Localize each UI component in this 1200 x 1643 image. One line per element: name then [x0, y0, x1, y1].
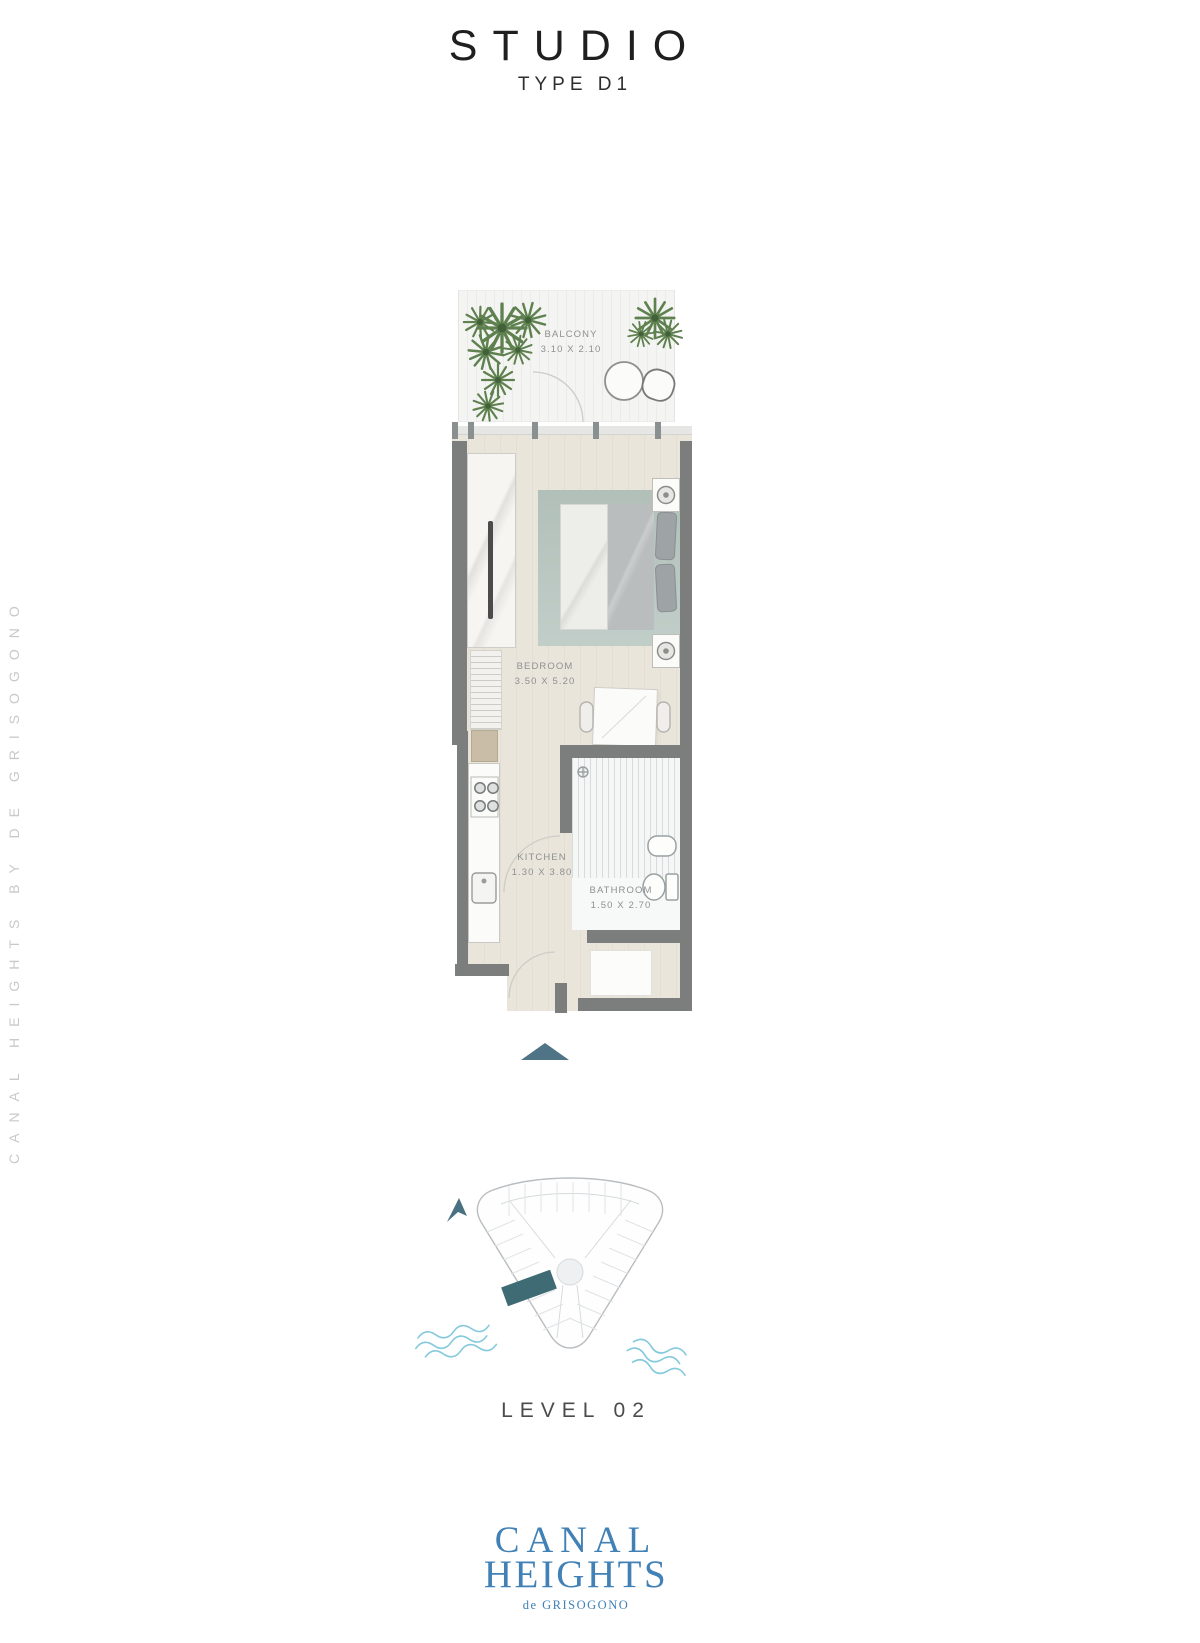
- north-arrow-icon: [447, 1198, 467, 1222]
- room-label-bedroom: BEDROOM 3.50 X 5.20: [515, 660, 576, 689]
- window-mullion: [452, 422, 458, 439]
- page-subtitle: TYPE D1: [0, 74, 1150, 96]
- entrance-arrow-icon: [521, 1043, 569, 1060]
- wall: [560, 745, 680, 758]
- page-title: STUDIO: [0, 22, 1150, 71]
- room-label-bathroom: BATHROOM 1.50 X 2.70: [590, 884, 653, 913]
- wall: [680, 441, 692, 1011]
- room-label-kitchen: KITCHEN 1.30 X 3.80: [512, 851, 573, 880]
- room-dimensions: 1.30 X 3.80: [512, 866, 573, 881]
- nightstand: [652, 634, 680, 668]
- window-mullion: [532, 422, 538, 439]
- wall: [560, 745, 572, 833]
- room-name: KITCHEN: [512, 851, 573, 866]
- level-label: LEVEL 02: [0, 1399, 1152, 1423]
- room-name: BATHROOM: [590, 884, 653, 899]
- bathroom-shower-tiles: [572, 758, 680, 878]
- floor-plan: BALCONY 3.10 X 2.10: [440, 288, 700, 1068]
- room-name: BALCONY: [541, 328, 602, 343]
- brand-name-line2: HEIGHTS: [0, 1557, 1152, 1593]
- console-cabinet: [471, 730, 498, 762]
- wardrobe-handle: [488, 521, 493, 619]
- window-mullion: [468, 422, 474, 439]
- room-dimensions: 1.50 X 2.70: [590, 899, 653, 914]
- room-dimensions: 3.50 X 5.20: [515, 675, 576, 690]
- dining-table: [592, 687, 658, 747]
- wall: [578, 998, 680, 1011]
- room-name: BEDROOM: [515, 660, 576, 675]
- kitchen-counter: [468, 763, 500, 943]
- bed-pillow: [655, 564, 677, 613]
- nightstand: [652, 478, 680, 512]
- entry-closet-mat: [590, 950, 652, 996]
- wall: [587, 930, 680, 943]
- window-mullion: [655, 422, 661, 439]
- shelf-unit: [470, 650, 502, 730]
- room-label-balcony: BALCONY 3.10 X 2.10: [541, 328, 602, 357]
- side-watermark: CANAL HEIGHTS BY DE GRISOGONO: [6, 352, 22, 1164]
- level-key-plan: [405, 1140, 715, 1385]
- bed-blanket: [608, 504, 654, 630]
- wall: [457, 743, 468, 976]
- room-dimensions: 3.10 X 2.10: [541, 343, 602, 358]
- key-plan-svg: [405, 1140, 715, 1385]
- bed-pillow: [655, 512, 677, 561]
- wall: [452, 441, 467, 743]
- window-mullion: [593, 422, 599, 439]
- brochure-page: STUDIO TYPE D1 CANAL HEIGHTS BY DE GRISO…: [0, 0, 1200, 1643]
- exterior-cut-bottom-left: [452, 976, 507, 1011]
- brand-logo: CANAL HEIGHTS de GRISOGONO: [0, 1522, 1152, 1613]
- brand-byline: de GRISOGONO: [0, 1598, 1152, 1613]
- bed-foot-throw: [560, 504, 608, 630]
- wall: [555, 983, 567, 1013]
- water-waves-left: [413, 1320, 497, 1362]
- water-waves-right: [624, 1336, 691, 1379]
- wall: [455, 964, 509, 976]
